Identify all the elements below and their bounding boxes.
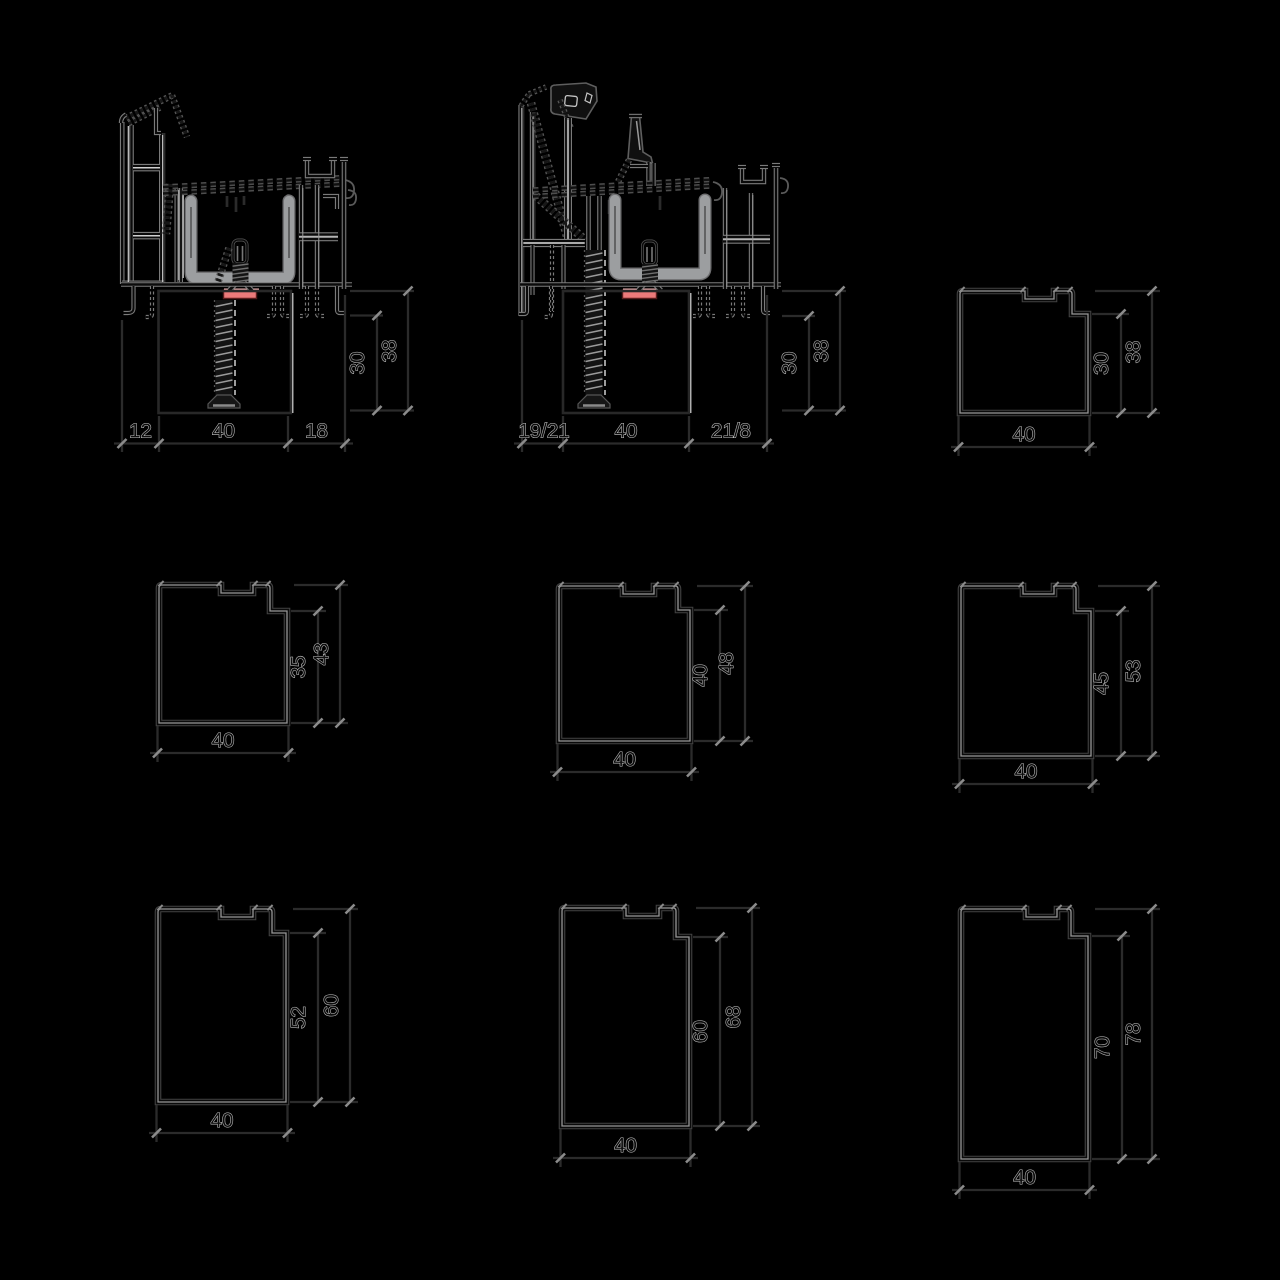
svg-text:40: 40 [615,420,638,443]
svg-text:21/8: 21/8 [711,420,751,443]
svg-text:30: 30 [1090,352,1113,375]
svg-text:68: 68 [722,1006,745,1029]
svg-text:43: 43 [310,643,333,666]
svg-text:70: 70 [1091,1036,1114,1059]
svg-text:40: 40 [1015,760,1038,783]
svg-text:12: 12 [129,420,152,443]
svg-text:40: 40 [1013,423,1036,446]
svg-text:40: 40 [689,664,712,687]
svg-text:52: 52 [287,1006,310,1029]
svg-text:40: 40 [613,748,636,771]
svg-text:30: 30 [778,352,801,375]
svg-text:38: 38 [1122,341,1145,364]
svg-text:40: 40 [614,1134,637,1157]
svg-text:40: 40 [212,729,235,752]
svg-text:40: 40 [212,420,235,443]
svg-text:30: 30 [346,352,369,375]
svg-text:38: 38 [810,340,833,363]
svg-text:18: 18 [305,420,328,443]
svg-text:19/21: 19/21 [518,420,569,443]
svg-text:60: 60 [320,994,343,1017]
svg-text:78: 78 [1122,1023,1145,1046]
svg-text:60: 60 [689,1020,712,1043]
svg-text:48: 48 [715,652,738,675]
svg-text:40: 40 [211,1109,234,1132]
svg-text:40: 40 [1013,1166,1036,1189]
svg-text:35: 35 [287,656,310,679]
svg-text:38: 38 [378,340,401,363]
svg-text:45: 45 [1090,672,1113,695]
svg-text:53: 53 [1122,660,1145,683]
